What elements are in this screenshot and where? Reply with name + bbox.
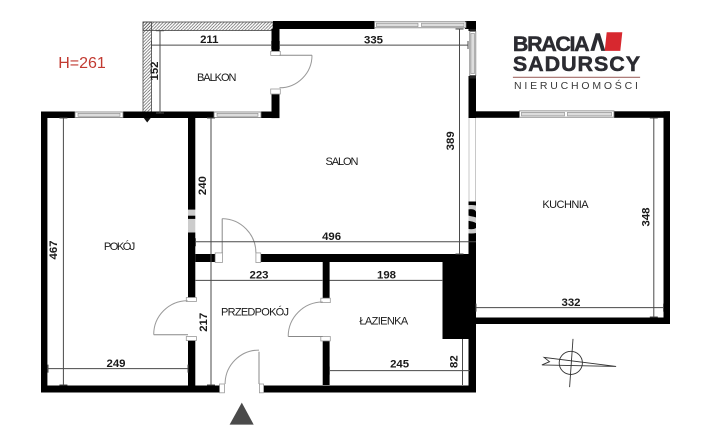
svg-text:245: 245	[390, 358, 410, 370]
svg-text:198: 198	[377, 269, 396, 281]
svg-text:ŁAZIENKA: ŁAZIENKA	[359, 316, 408, 328]
svg-text:332: 332	[561, 297, 580, 309]
svg-text:335: 335	[364, 34, 384, 46]
svg-text:H=261: H=261	[58, 55, 106, 72]
svg-text:SADURSCY: SADURSCY	[513, 52, 640, 76]
svg-text:KUCHNIA: KUCHNIA	[542, 199, 589, 211]
svg-text:240: 240	[197, 176, 209, 195]
svg-text:POKÓJ: POKÓJ	[104, 240, 135, 253]
svg-text:SALON: SALON	[326, 156, 359, 168]
svg-text:PRZEDPOKÓJ: PRZEDPOKÓJ	[221, 305, 289, 318]
svg-text:348: 348	[640, 207, 652, 226]
svg-text:BALKON: BALKON	[197, 72, 237, 84]
svg-text:211: 211	[200, 34, 219, 46]
svg-text:152: 152	[149, 61, 161, 80]
svg-text:389: 389	[445, 131, 457, 150]
svg-text:82: 82	[449, 355, 461, 368]
svg-text:467: 467	[48, 240, 60, 259]
svg-text:NIERUCHOMOŚCI: NIERUCHOMOŚCI	[514, 79, 638, 92]
svg-text:S: S	[458, 198, 485, 242]
svg-text:223: 223	[249, 269, 268, 281]
svg-text:217: 217	[198, 313, 210, 332]
svg-text:496: 496	[322, 231, 341, 243]
svg-text:249: 249	[106, 358, 125, 370]
